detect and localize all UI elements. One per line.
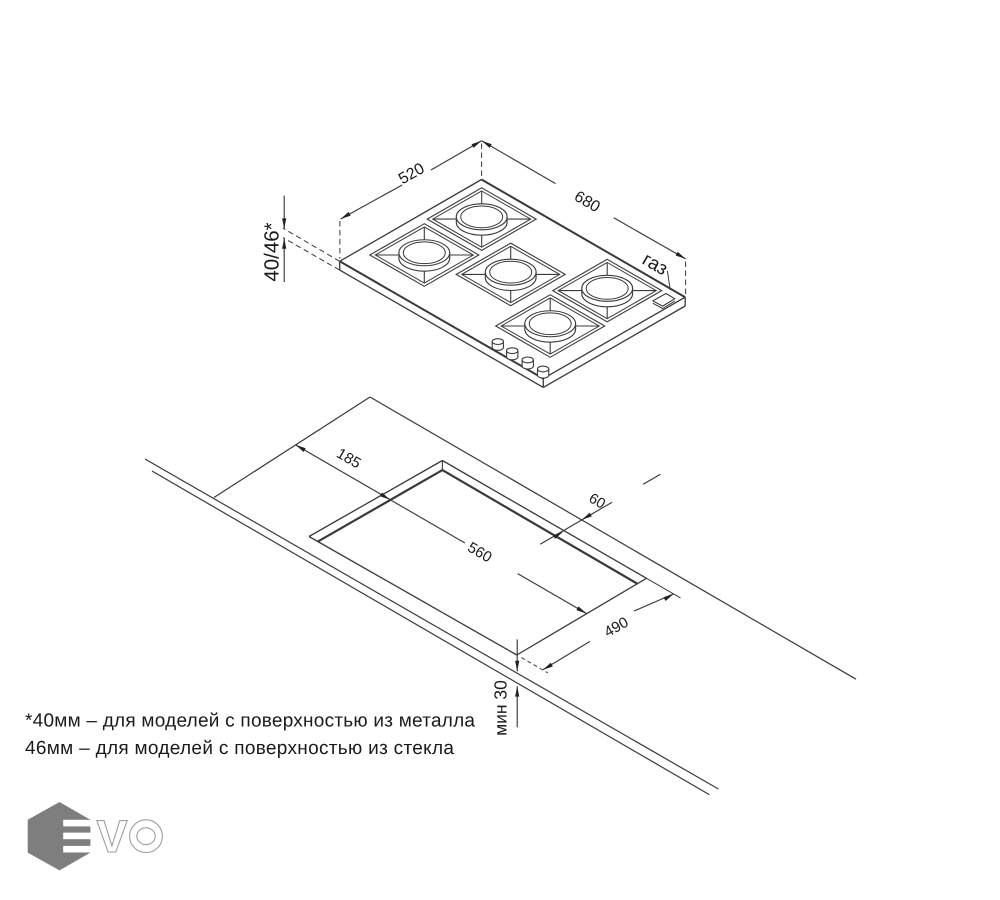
svg-text:*40мм – для моделей с поверхно: *40мм – для моделей с поверхностью из ме…	[25, 711, 475, 732]
svg-text:40/46*: 40/46*	[261, 222, 284, 281]
svg-text:мин 30: мин 30	[491, 680, 511, 736]
svg-text:46мм – для моделей с поверхнос: 46мм – для моделей с поверхностью из сте…	[25, 738, 454, 759]
